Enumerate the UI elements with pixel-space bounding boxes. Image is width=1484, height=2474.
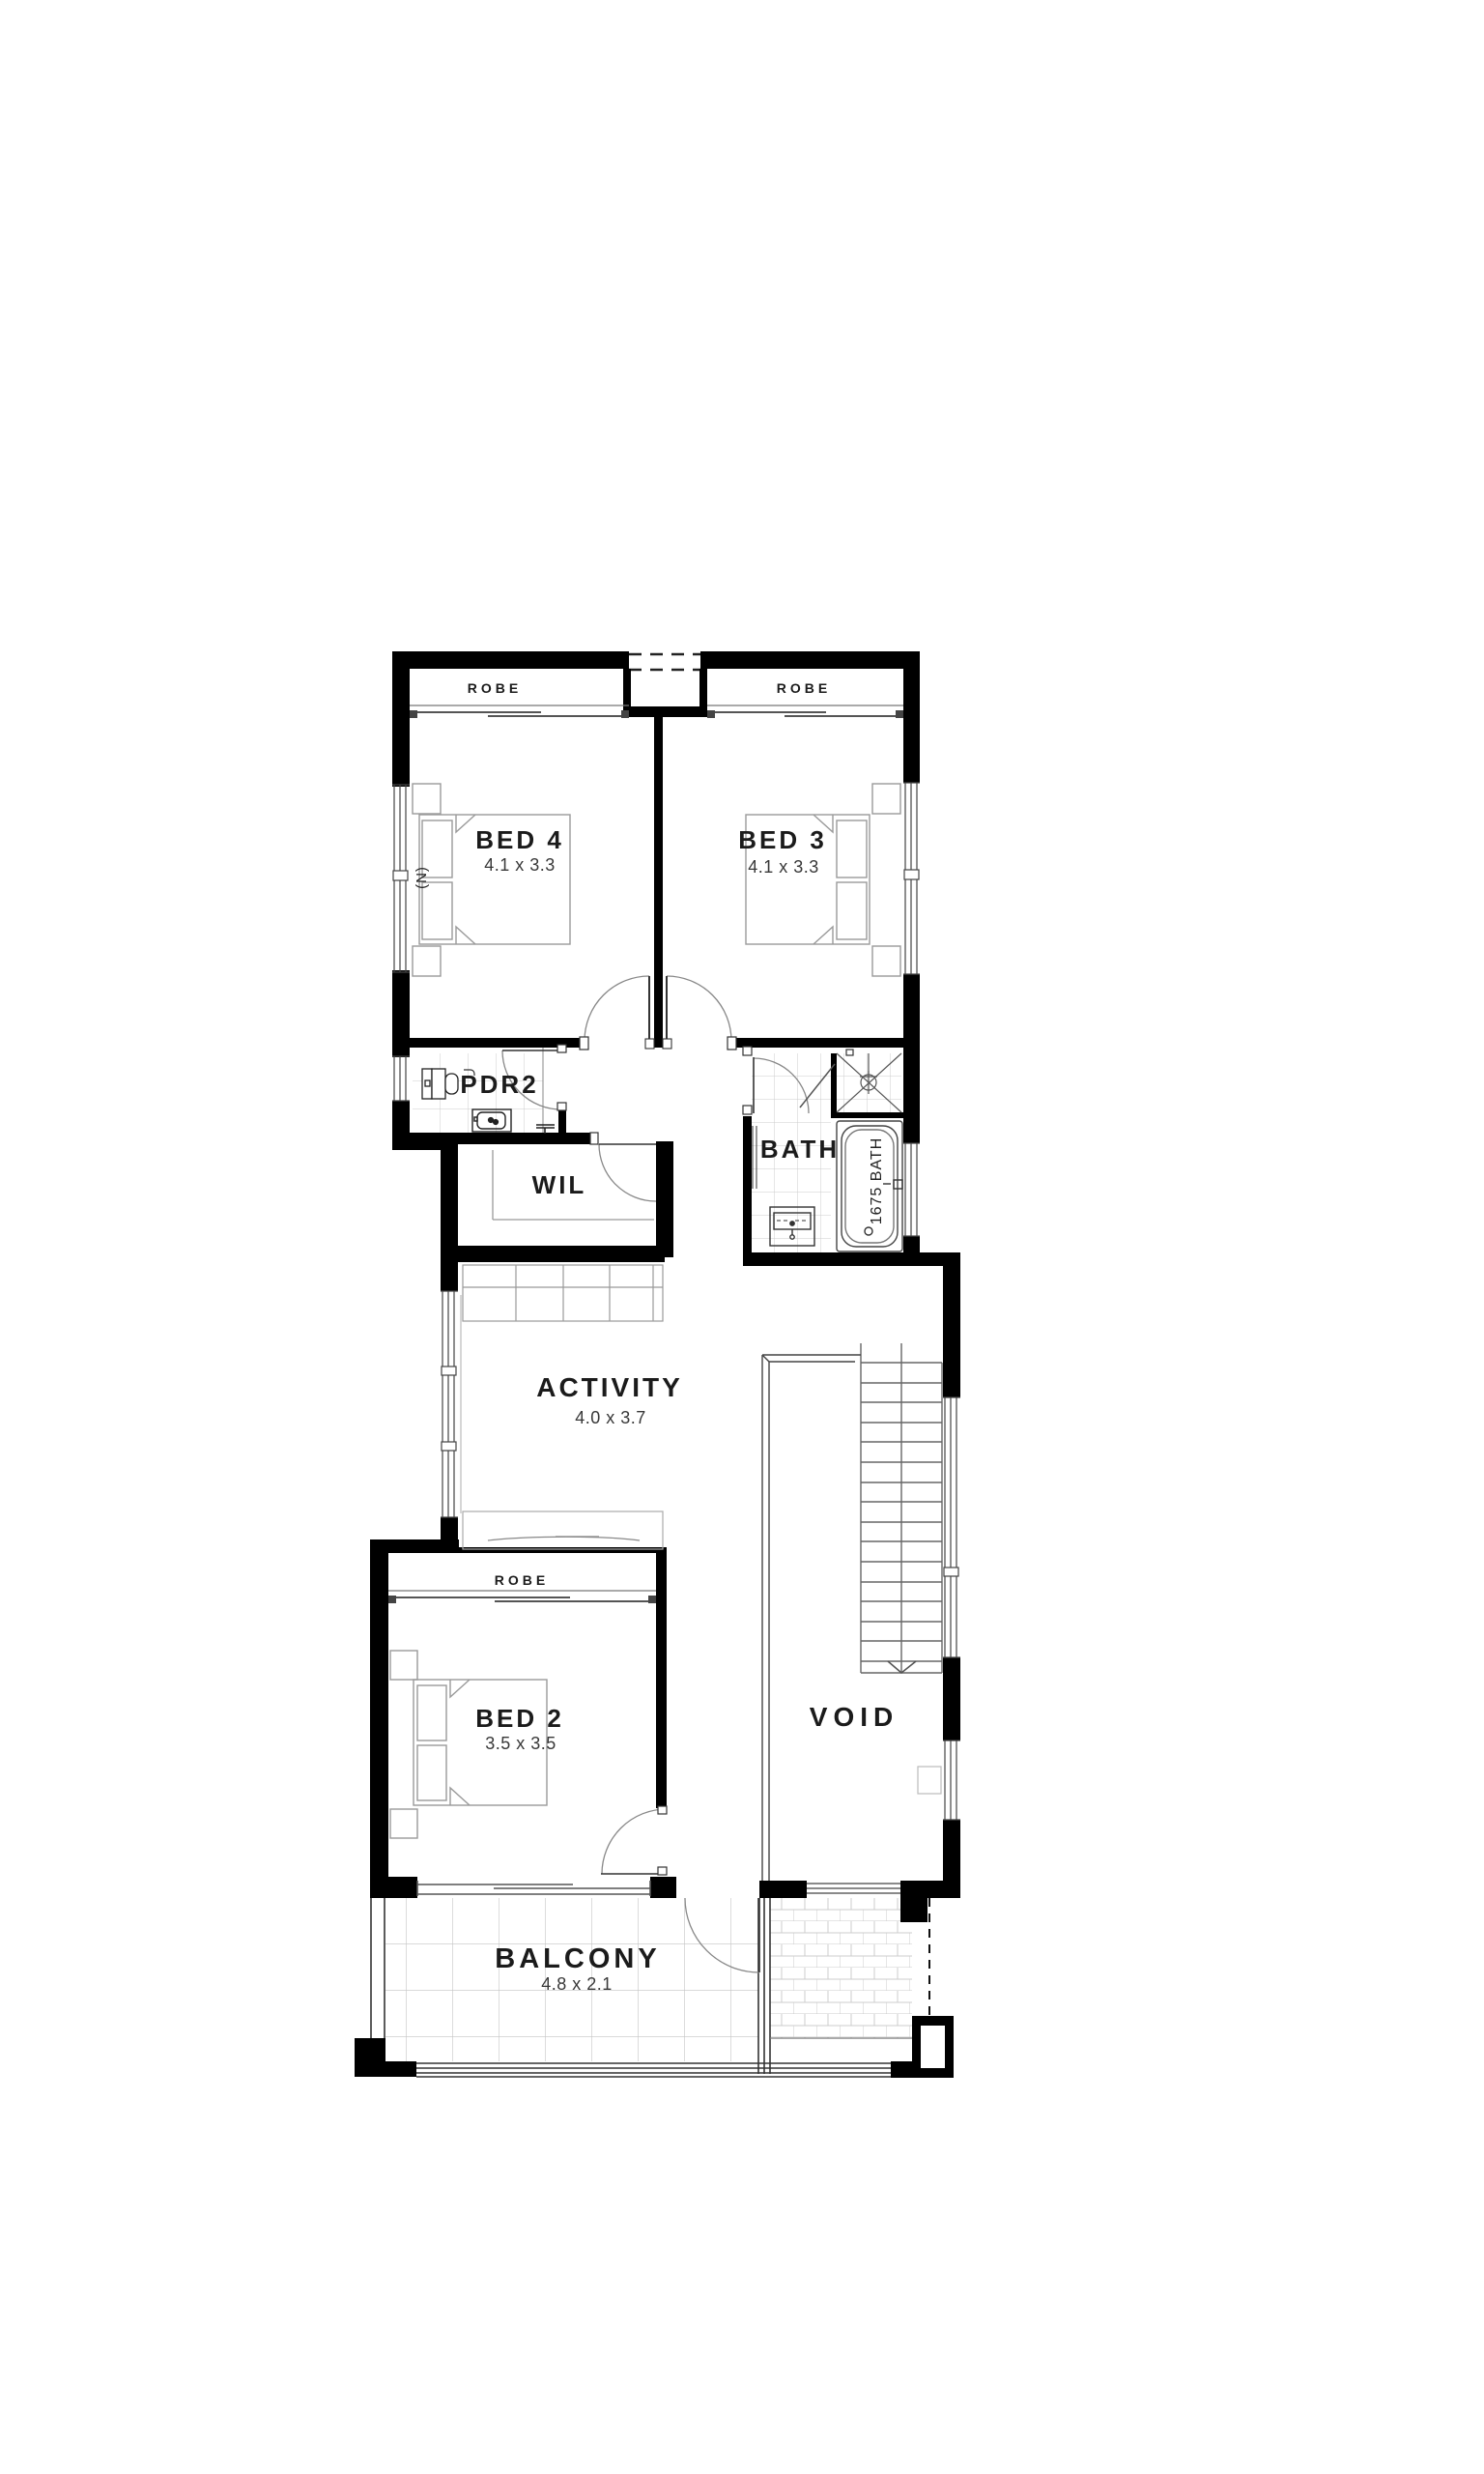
svg-text:4.8 x 2.1: 4.8 x 2.1	[541, 1974, 613, 1994]
svg-text:ROBE: ROBE	[495, 1572, 549, 1588]
svg-text:WIL: WIL	[532, 1170, 587, 1199]
svg-text:4.1 x 3.3: 4.1 x 3.3	[484, 855, 556, 875]
svg-text:BATH: BATH	[760, 1135, 840, 1164]
svg-text:ROBE: ROBE	[777, 680, 831, 696]
svg-text:BED 4: BED 4	[475, 825, 564, 854]
svg-text:3.5 x 3.5: 3.5 x 3.5	[485, 1734, 556, 1753]
svg-text:ROBE: ROBE	[468, 680, 522, 696]
svg-text:VOID: VOID	[810, 1702, 899, 1732]
svg-text:BALCONY: BALCONY	[495, 1943, 660, 1974]
svg-text:(N): (N)	[414, 866, 430, 889]
svg-text:ACTIVITY: ACTIVITY	[536, 1372, 683, 1402]
svg-text:BED 2: BED 2	[475, 1704, 564, 1733]
svg-text:4.0 x 3.7: 4.0 x 3.7	[575, 1408, 646, 1427]
svg-text:BED 3: BED 3	[738, 825, 827, 854]
svg-text:PDR2: PDR2	[460, 1070, 538, 1099]
svg-text:1675 BATH: 1675 BATH	[869, 1137, 885, 1225]
svg-text:4.1 x 3.3: 4.1 x 3.3	[748, 857, 819, 877]
